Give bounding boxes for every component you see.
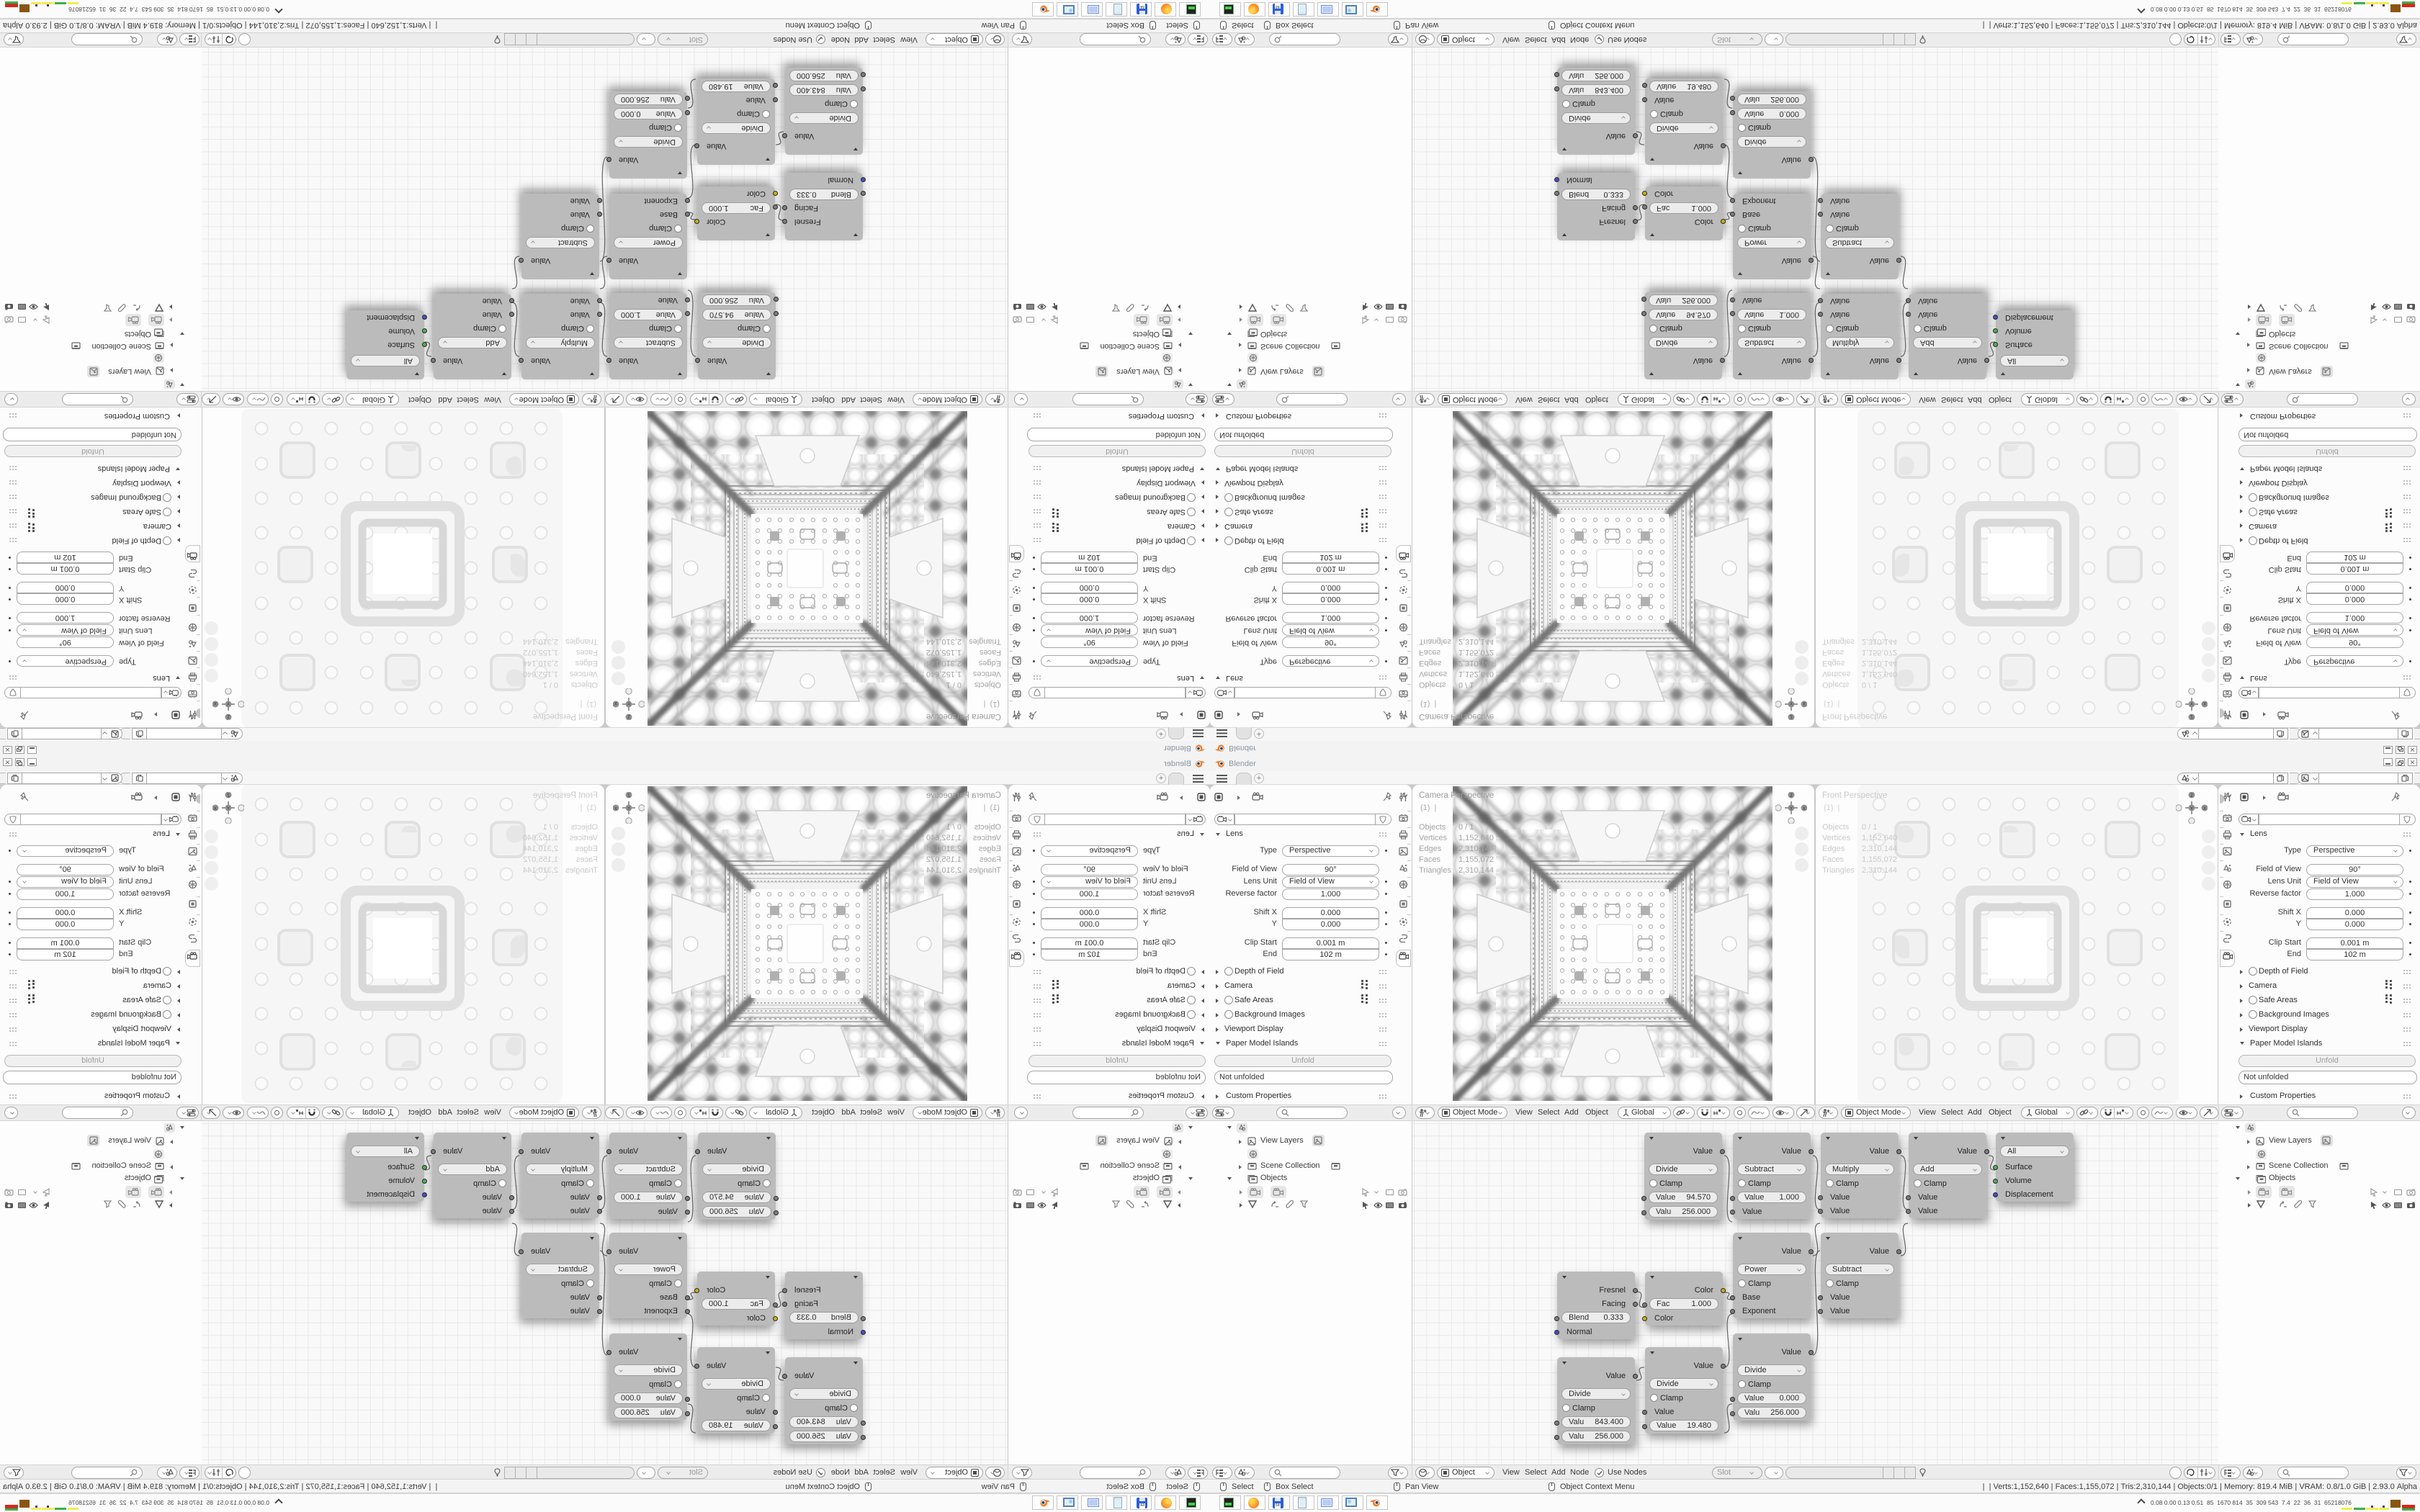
svg-text:Y: Y xyxy=(227,807,230,811)
svg-text:Z: Z xyxy=(227,794,230,798)
svg-text:Z: Z xyxy=(627,794,630,798)
svg-text:X: X xyxy=(214,807,217,811)
svg-text:Y: Y xyxy=(1790,701,1793,705)
svg-text:Y: Y xyxy=(627,701,630,705)
svg-text:X: X xyxy=(214,701,217,705)
svg-text:X: X xyxy=(1803,701,1806,705)
svg-text:Z: Z xyxy=(1790,794,1793,798)
svg-text:X: X xyxy=(2203,807,2206,811)
svg-text:Y: Y xyxy=(627,807,630,811)
svg-text:Z: Z xyxy=(1790,714,1793,718)
svg-text:X: X xyxy=(614,701,617,705)
svg-text:X: X xyxy=(1803,807,1806,811)
svg-text:X: X xyxy=(2203,701,2206,705)
svg-text:Z: Z xyxy=(2190,794,2193,798)
svg-text:Z: Z xyxy=(227,714,230,718)
svg-text:Z: Z xyxy=(2190,714,2193,718)
svg-text:Y: Y xyxy=(2190,701,2193,705)
svg-text:Y: Y xyxy=(2190,807,2193,811)
svg-text:Y: Y xyxy=(1790,807,1793,811)
svg-text:X: X xyxy=(614,807,617,811)
svg-text:Z: Z xyxy=(627,714,630,718)
svg-text:Y: Y xyxy=(227,701,230,705)
